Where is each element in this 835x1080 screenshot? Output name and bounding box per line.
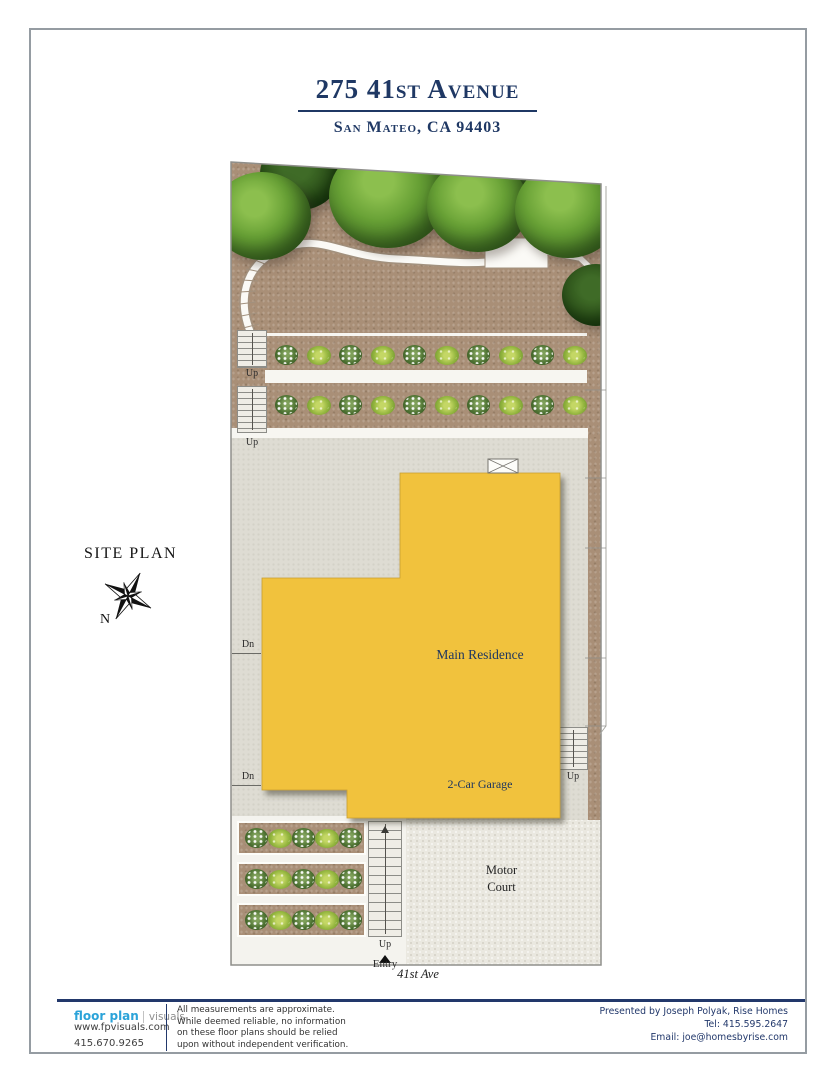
street-label: 41st Ave	[229, 967, 607, 982]
site-plan-document: 275 41st Avenue San Mateo, CA 94403 SITE…	[0, 0, 835, 1080]
footer-vertical-divider	[166, 1004, 167, 1051]
footer-divider-line	[57, 999, 805, 1002]
agent-email: Email: joe@homesbyrise.com	[600, 1031, 788, 1044]
garage-label: 2-Car Garage	[400, 777, 560, 792]
up-label: Up	[368, 939, 402, 950]
page-subtitle: San Mateo, CA 94403	[0, 119, 835, 137]
fpv-website: www.fpvisuals.com	[74, 1022, 170, 1033]
presented-by: Presented by Joseph Polyak, Rise Homes	[600, 1005, 788, 1018]
fpv-logo-primary: floor plan	[74, 1009, 139, 1023]
compass-rose-icon: N	[94, 566, 162, 633]
compass-north-label: N	[100, 612, 110, 627]
site-plan-label: SITE PLAN	[84, 545, 177, 563]
fence-ticks	[585, 390, 606, 726]
main-residence-label: Main Residence	[400, 647, 560, 663]
agent-tel: Tel: 415.595.2647	[600, 1018, 788, 1031]
fpv-phone: 415.670.9265	[74, 1038, 144, 1049]
presented-by-block: Presented by Joseph Polyak, Rise Homes T…	[600, 1005, 788, 1044]
main-residence-footprint	[262, 473, 560, 818]
motor-court-label: Motor Court	[402, 862, 601, 896]
plan-overlay	[229, 150, 607, 970]
site-plan-drawing: Up Up Up Dn Dn	[229, 150, 607, 970]
disclaimer: All measurements are approximate. While …	[177, 1005, 348, 1051]
stairs-direction-arrow	[381, 826, 389, 833]
header: 275 41st Avenue San Mateo, CA 94403	[0, 74, 835, 137]
page-title: 275 41st Avenue	[298, 74, 538, 112]
skylight-symbol	[488, 459, 518, 473]
